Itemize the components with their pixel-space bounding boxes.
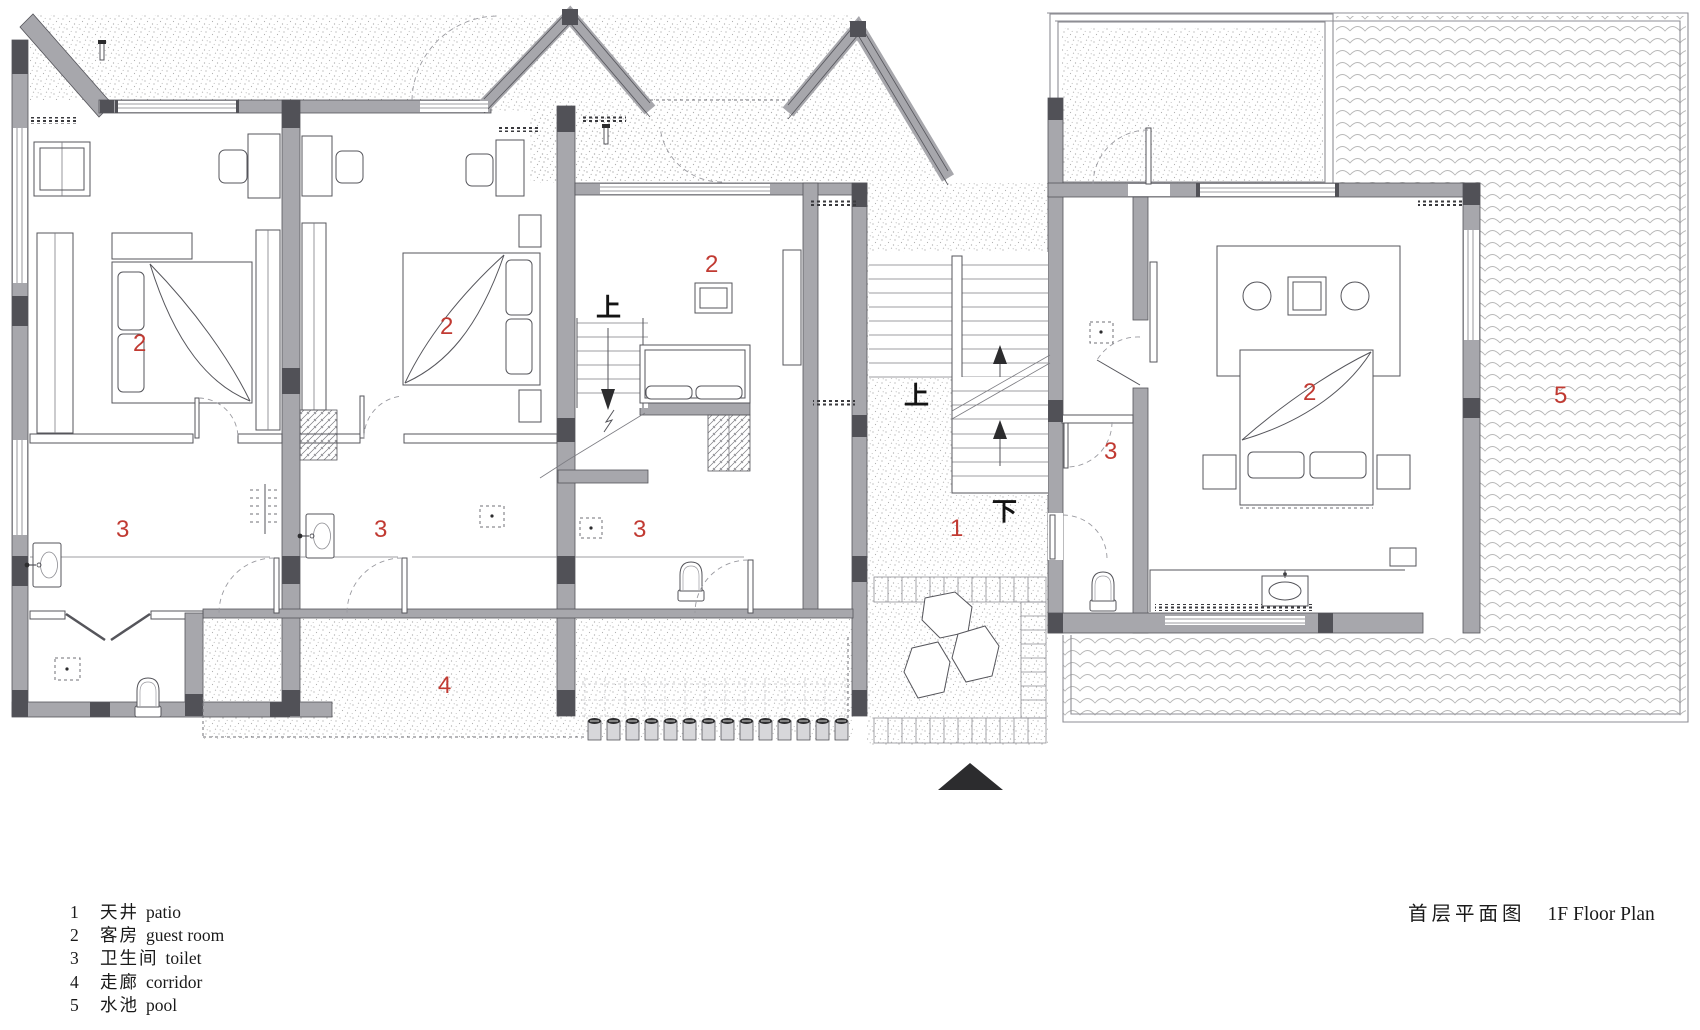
- legend-zh: 卫生间: [100, 948, 159, 968]
- door: [1048, 513, 1107, 560]
- room-label-guest-c: 2: [705, 251, 718, 278]
- toilet: [1090, 572, 1116, 611]
- bed-b: [403, 215, 541, 422]
- sink: [25, 543, 61, 587]
- legend-num: 5: [70, 994, 100, 1017]
- legend-zh: 水池: [100, 995, 139, 1015]
- floor-plan-page: 1 2 2 2 2 3 3 3 3 4 5 上 上 下 1天井patio 2客房…: [0, 0, 1700, 1030]
- legend-zh: 天井: [100, 902, 139, 922]
- media-console: [783, 250, 801, 365]
- room-label-pool: 5: [1554, 382, 1567, 409]
- shower-fixture: [250, 484, 280, 534]
- room-label-patio: 1: [950, 515, 963, 542]
- legend-zh: 客房: [100, 925, 139, 945]
- sill-dotband: [813, 400, 855, 406]
- pool-right: [1480, 188, 1686, 720]
- drawing-title: 首层平面图1F Floor Plan: [1408, 897, 1655, 926]
- pool-bottom: [1063, 633, 1480, 720]
- door: [360, 396, 402, 438]
- stair-up-label: 上: [904, 382, 929, 410]
- courtyard-floor: [1062, 28, 1323, 184]
- sill-dotband: [497, 126, 541, 132]
- window: [1464, 230, 1479, 340]
- legend-item-toilet: 3卫生间toilet: [70, 947, 224, 970]
- legend-num: 1: [70, 901, 100, 924]
- vanity-counter: [1150, 548, 1416, 612]
- chair: [336, 151, 363, 183]
- legend-zh: 走廊: [100, 972, 139, 992]
- legend-en: corridor: [146, 972, 202, 992]
- window: [600, 184, 770, 194]
- desk: [496, 140, 524, 196]
- window: [420, 101, 488, 112]
- room-label-toilet-c: 3: [633, 516, 646, 543]
- corridor-floor: [203, 618, 853, 739]
- door: [1097, 337, 1140, 385]
- bench-daybed: [640, 345, 750, 403]
- legend-en: pool: [146, 995, 177, 1015]
- room-label-corridor: 4: [438, 672, 451, 699]
- toilet: [678, 562, 704, 601]
- legend-en: guest room: [146, 925, 224, 945]
- door: [219, 558, 279, 613]
- pool-top: [1336, 16, 1686, 188]
- chair: [219, 150, 247, 183]
- bed-d: [1203, 350, 1410, 508]
- window: [1165, 616, 1305, 625]
- room-label-guest-a: 2: [133, 330, 146, 357]
- room-label-guest-d: 2: [1303, 379, 1316, 406]
- window: [115, 100, 239, 113]
- bed-a: [112, 233, 252, 403]
- sink: [298, 514, 334, 558]
- sill-dotband: [1418, 200, 1462, 207]
- sill-dotband: [580, 115, 626, 122]
- legend-en: toilet: [166, 948, 202, 968]
- closet: [300, 410, 337, 460]
- legend-item-patio: 1天井patio: [70, 901, 224, 924]
- legend-num: 4: [70, 971, 100, 994]
- desk: [248, 134, 280, 198]
- legend-num: 3: [70, 947, 100, 970]
- desk: [302, 136, 332, 196]
- door: [695, 560, 753, 613]
- legend-item-pool: 5水池pool: [70, 994, 224, 1017]
- legend-item-guest-room: 2客房guest room: [70, 924, 224, 947]
- window: [1196, 183, 1339, 197]
- room-label-toilet-d: 3: [1104, 438, 1117, 465]
- legend-item-corridor: 4走廊corridor: [70, 971, 224, 994]
- legend-en: patio: [146, 902, 181, 922]
- door: [347, 558, 407, 613]
- door: [195, 398, 238, 438]
- wall-shelf: [1150, 262, 1157, 362]
- stair-down-label: 下: [992, 499, 1017, 526]
- room-label-toilet-a: 3: [116, 516, 129, 543]
- legend: 1天井patio 2客房guest room 3卫生间toilet 4走廊cor…: [70, 901, 224, 1017]
- toilet: [135, 678, 161, 717]
- counter-object: [1390, 548, 1416, 566]
- room-label-toilet-b: 3: [374, 516, 387, 543]
- room-c-stair: [540, 318, 648, 478]
- window: [13, 440, 27, 535]
- entry-double-door: [66, 614, 150, 640]
- drawing-title-en: 1F Floor Plan: [1548, 904, 1655, 925]
- floor-plan-canvas: 1 2 2 2 2 3 3 3 3 4 5 上 上 下: [0, 0, 1700, 1030]
- sill-dotband: [810, 200, 856, 207]
- drawing-title-zh: 首层平面图: [1408, 904, 1526, 925]
- chair: [466, 154, 493, 186]
- window: [13, 128, 27, 283]
- north-arrow: [938, 763, 1003, 790]
- legend-num: 2: [70, 924, 100, 947]
- room-label-guest-b: 2: [440, 313, 453, 340]
- stair-up-label: 上: [596, 294, 621, 322]
- sill-dotband: [30, 117, 76, 124]
